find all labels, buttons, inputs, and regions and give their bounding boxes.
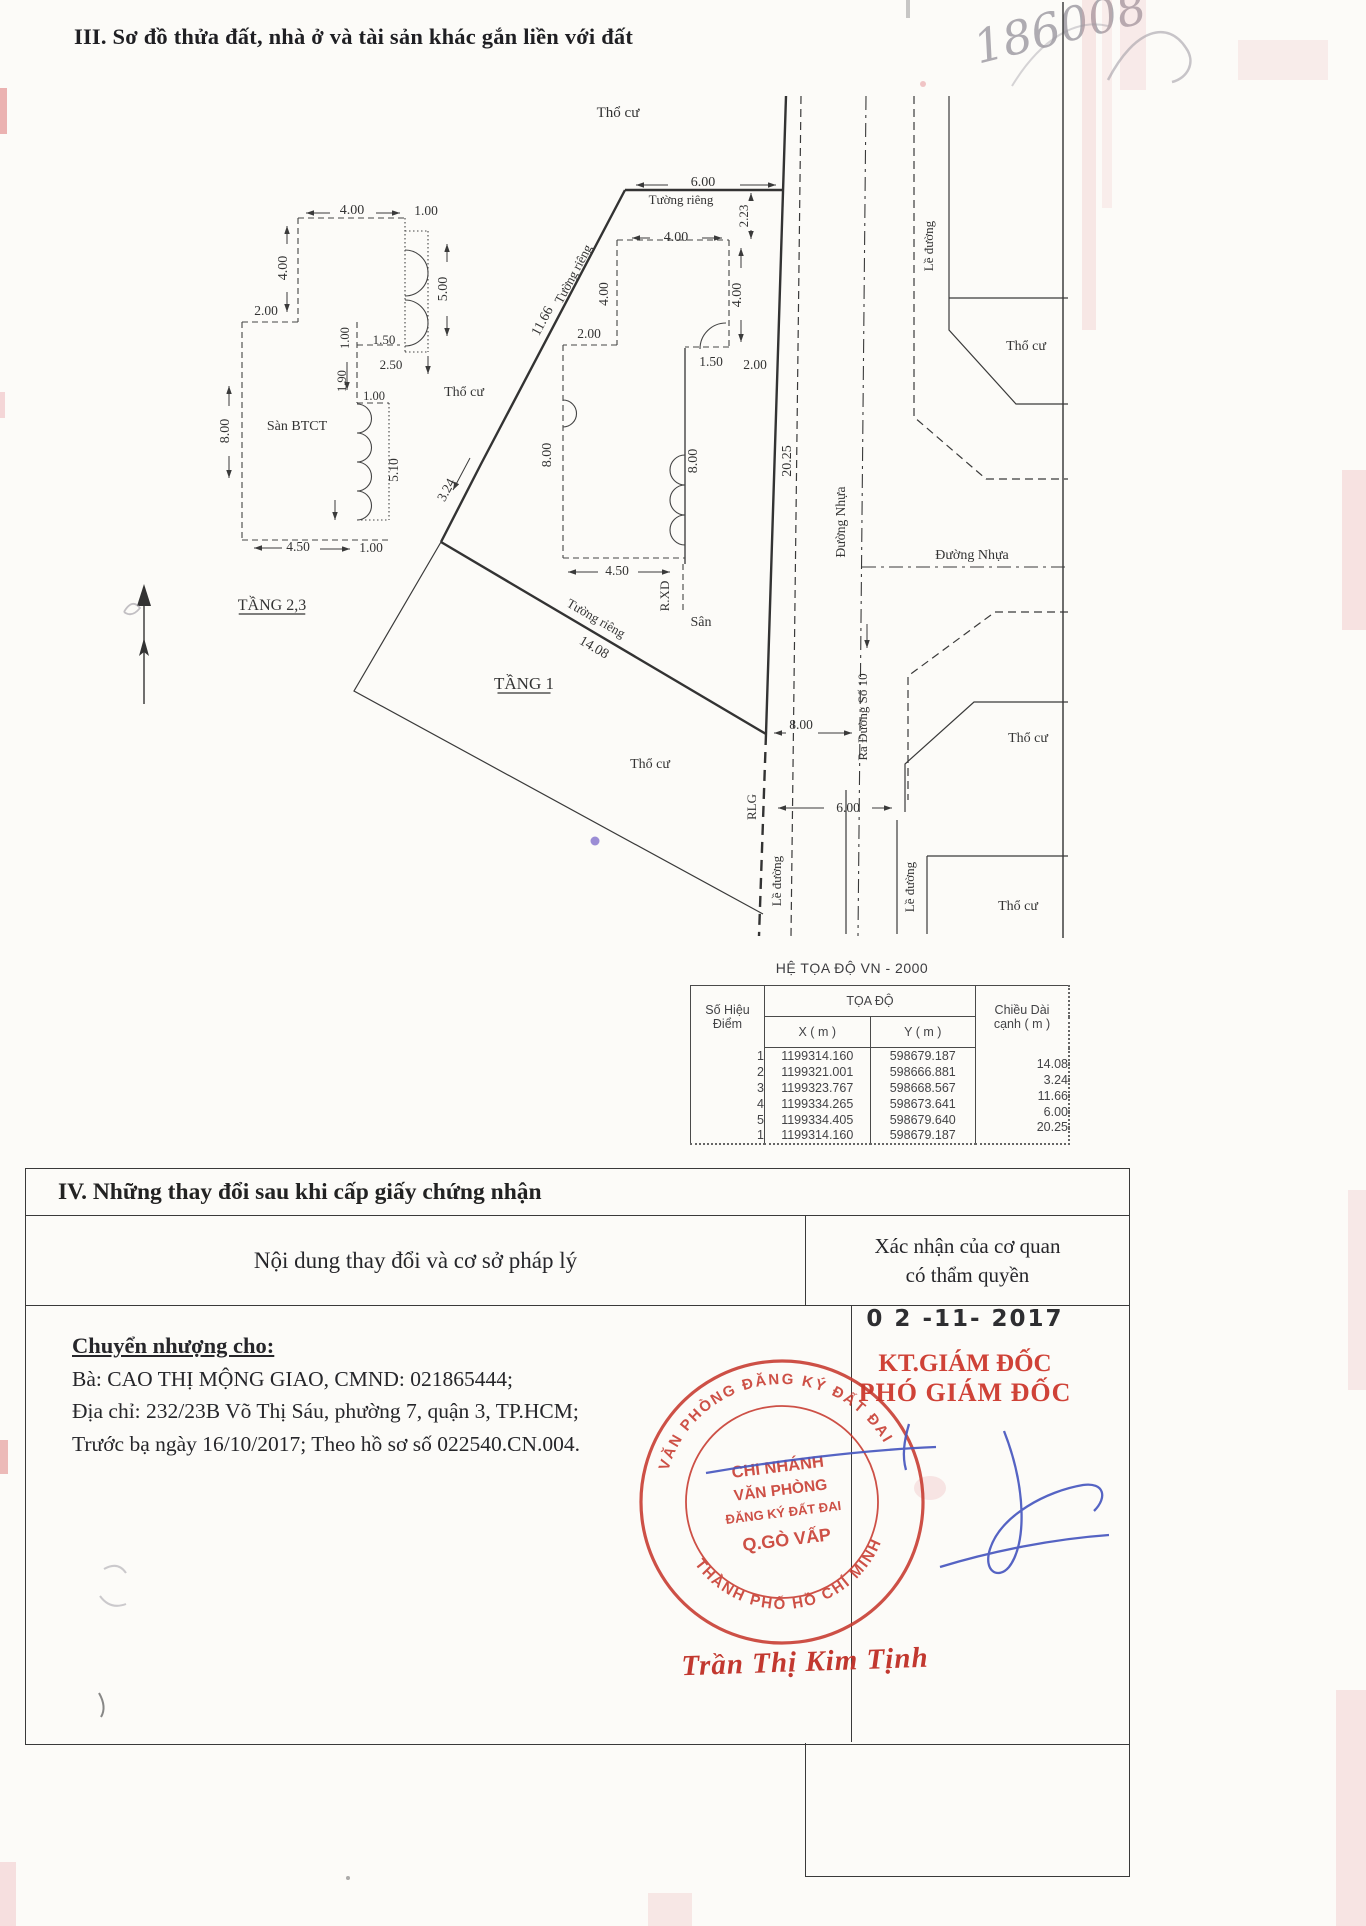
scanned-certificate-page: III. Sơ đồ thửa đất, nhà ở và tài sản kh… — [0, 0, 1366, 1926]
col-header-point-l2: Điểm — [691, 1017, 764, 1031]
diagram-label: 1.50 — [699, 354, 723, 369]
section4-right-extension — [805, 1743, 1130, 1877]
coord-row: 11199314.160598679.18720.25 — [691, 1128, 1070, 1144]
diagram-label: R.XD — [657, 581, 672, 612]
col-right-header-l1: Xác nhận của cơ quan — [874, 1232, 1060, 1261]
point-id: 2 — [691, 1064, 765, 1080]
point-id: 5 — [691, 1112, 765, 1128]
coord-row: 21199321.001598666.88114.08 — [691, 1064, 1070, 1080]
x-value: 1199334.405 — [765, 1112, 871, 1128]
col-header-length: Chiều Dài cạnh ( m ) — [976, 986, 1070, 1048]
coordinate-grid: Số Hiệu Điểm TỌA ĐỘ Chiều Dài cạnh ( m )… — [690, 985, 1070, 1145]
diagram-label: 5.00 — [436, 277, 451, 302]
coordinate-table-title: HỆ TỌA ĐỘ VN - 2000 — [690, 960, 1070, 976]
diagram-label: Sàn BTCT — [267, 419, 328, 434]
transfer-line2: Địa chỉ: 232/23B Võ Thị Sáu, phường 7, q… — [72, 1395, 851, 1428]
diagram-labels: Thổ cư6.00Tường riêng2.234.004.001.502.0… — [218, 105, 1048, 914]
transfer-line3: Trước bạ ngày 16/10/2017; Theo hồ sơ số … — [72, 1428, 851, 1461]
diagram-label: 14.08 — [576, 634, 611, 663]
dimension-arrows — [229, 185, 892, 808]
door-arcs — [357, 250, 726, 545]
diagram-label: 8.00 — [789, 717, 813, 732]
point-id: 1 — [691, 1048, 765, 1064]
diagram-label: 8.00 — [540, 443, 555, 468]
diagram-label: Thổ cư — [1006, 339, 1046, 354]
col-right-header-l2: có thẩm quyền — [906, 1261, 1030, 1290]
date-stamp: 0 2 -11- 2017 — [815, 1306, 1115, 1332]
diagram-label: 2.23 — [736, 205, 751, 228]
diagram-label: Thổ cư — [1008, 731, 1048, 746]
diagram-label: Lề đường — [902, 861, 917, 912]
y-value: 598679.640 — [870, 1112, 976, 1128]
y-value: 598679.187 — [870, 1048, 976, 1064]
diagram-label: 3.24 — [434, 476, 458, 504]
diagram-label: Tường riêng — [551, 241, 595, 306]
diagram-label: 8.00 — [686, 449, 701, 474]
diagram-label: 6.00 — [836, 800, 860, 815]
col-header-point: Số Hiệu Điểm — [691, 986, 765, 1048]
coordinate-table: HỆ TỌA ĐỘ VN - 2000 Số Hiệu Điểm TỌA ĐỘ … — [690, 960, 1070, 1145]
x-value: 1199321.001 — [765, 1064, 871, 1080]
parcel-thin-lines — [354, 96, 1068, 934]
diagram-label: 2.00 — [743, 357, 767, 372]
diagram-label: Tường riêng — [649, 192, 714, 207]
diagram-label: 1.90 — [335, 370, 349, 392]
diagram-label: Thổ cư — [444, 385, 484, 400]
point-id: 4 — [691, 1096, 765, 1112]
coord-row: 41199334.265598673.64111.66 — [691, 1096, 1070, 1112]
section4-col-right-header: Xác nhận của cơ quan có thẩm quyền — [806, 1216, 1129, 1305]
diagram-label: 4.00 — [664, 230, 689, 245]
transfer-heading: Chuyển nhượng cho: — [72, 1330, 851, 1363]
edge-length: 20.25 — [976, 1128, 1070, 1144]
diagram-label: 1.00 — [359, 540, 383, 555]
diagram-label: 5.10 — [386, 458, 401, 482]
diagram-label: Thổ cư — [630, 757, 670, 772]
y-value: 598668.567 — [870, 1080, 976, 1096]
diagram-label: Đường Nhựa — [833, 487, 848, 558]
road-lines — [791, 96, 1068, 936]
col-header-group: TỌA ĐỘ — [765, 986, 976, 1017]
diagram-label: 2.00 — [254, 303, 278, 318]
col-header-length-l2: cạnh ( m ) — [976, 1017, 1068, 1031]
diagram-label: 20.25 — [780, 445, 795, 477]
col-header-length-l1: Chiều Dài — [976, 1003, 1068, 1017]
north-arrow-icon — [124, 584, 151, 704]
approver-title-1: KT.GIÁM ĐỐC — [815, 1350, 1115, 1378]
diagram-label: Lề đường — [921, 220, 936, 271]
x-value: 1199334.265 — [765, 1096, 871, 1112]
y-value: 598679.187 — [870, 1128, 976, 1144]
diagram-label: 6.00 — [691, 175, 716, 190]
col-header-y: Y ( m ) — [870, 1017, 976, 1048]
x-value: 1199314.160 — [765, 1048, 871, 1064]
diagram-label: 4.50 — [605, 563, 629, 578]
approver-title-2: PHÓ GIÁM ĐỐC — [815, 1378, 1115, 1408]
diagram-label: Thổ cư — [597, 105, 641, 121]
point-id: 3 — [691, 1080, 765, 1096]
approver-title-block: KT.GIÁM ĐỐC PHÓ GIÁM ĐỐC — [815, 1350, 1115, 1408]
diagram-label: 4.00 — [340, 203, 365, 218]
diagram-label: RLG — [744, 794, 759, 820]
handwritten-number: 186008 — [968, 0, 1151, 74]
diagram-label: 1.00 — [414, 203, 438, 218]
diagram-label: TẦNG 2,3 — [238, 595, 306, 614]
col-header-point-l1: Số Hiệu — [691, 1003, 764, 1017]
coord-row: 11199314.160598679.187 — [691, 1048, 1070, 1064]
building-left — [242, 218, 428, 540]
col-header-x: X ( m ) — [765, 1017, 871, 1048]
point-id: 1 — [691, 1128, 765, 1144]
diagram-label: Ra Đường Số 10 — [855, 673, 870, 760]
diagram-label: Sân — [691, 615, 712, 630]
diagram-label: 8.00 — [218, 419, 233, 444]
diagram-label: 4.00 — [276, 256, 291, 281]
diagram-label: Đường Nhựa — [935, 548, 1009, 563]
transfer-line1: Bà: CAO THỊ MỘNG GIAO, CMND: 021865444; — [72, 1363, 851, 1396]
diagram-label: 11.66 — [529, 304, 557, 338]
page-title: III. Sơ đồ thửa đất, nhà ở và tài sản kh… — [74, 24, 633, 50]
coord-row: 31199323.767598668.5673.24 — [691, 1080, 1070, 1096]
diagram-label: Thổ cư — [998, 899, 1038, 914]
diagram-label: TẦNG 1 — [494, 674, 554, 693]
y-value: 598666.881 — [870, 1064, 976, 1080]
purple-dot-artifact — [591, 837, 600, 846]
diagram-label: 1.50 — [373, 332, 396, 347]
diagram-label: 1.00 — [363, 389, 385, 403]
section4-col-left-header: Nội dung thay đổi và cơ sở pháp lý — [26, 1216, 806, 1305]
diagram-label: Tường riêng — [564, 595, 628, 641]
diagram-label: 4.00 — [730, 283, 745, 308]
diagram-label: 2.00 — [577, 326, 601, 341]
section4-table: IV. Những thay đổi sau khi cấp giấy chứn… — [25, 1168, 1130, 1745]
diagram-label: 4.50 — [286, 539, 310, 554]
diagram-label: 2.50 — [380, 357, 403, 372]
x-value: 1199323.767 — [765, 1080, 871, 1096]
y-value: 598673.641 — [870, 1096, 976, 1112]
building-middle — [563, 240, 729, 614]
x-value: 1199314.160 — [765, 1128, 871, 1144]
diagram-label: 1.00 — [338, 327, 352, 349]
diagram-label: Lề đường — [769, 855, 784, 906]
coord-row: 51199334.405598679.6406.00 — [691, 1112, 1070, 1128]
section4-title: IV. Những thay đổi sau khi cấp giấy chứn… — [26, 1169, 1129, 1216]
diagram-label: 4.00 — [596, 282, 611, 306]
parcel-boundary — [441, 96, 786, 936]
